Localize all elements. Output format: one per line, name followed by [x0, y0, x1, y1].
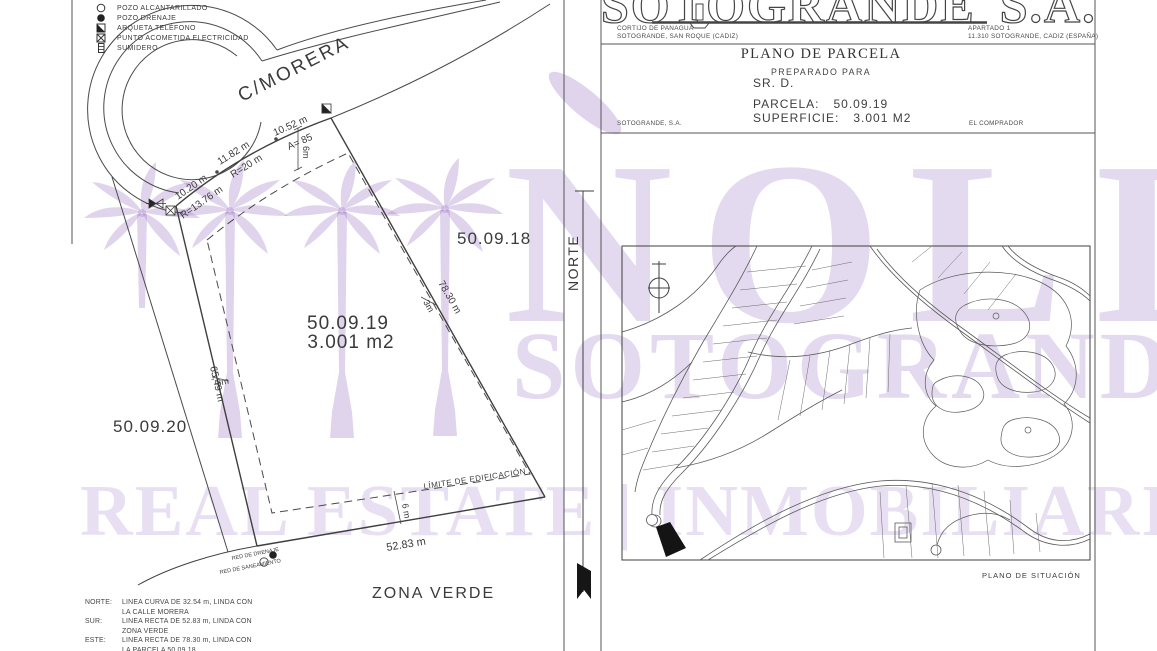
situation-map-caption: PLANO DE SITUACIÓN: [982, 571, 1081, 580]
parcel-field-label: PARCELA:: [753, 97, 819, 111]
street-morera-lines: [88, 0, 550, 552]
sewer-network-label: RED DE SANEAMIENTO: [219, 558, 282, 576]
legend-item: POZO DRENAJE: [96, 13, 249, 23]
note-text: LINEA RECTA DE 52.83 m, LINDA CONZONA VE…: [122, 617, 307, 636]
client-row: SR. D.: [753, 76, 794, 90]
area-row: SUPERFICIE:3.001 M2: [753, 111, 911, 125]
neighbor-east-label: 50.09.18: [457, 229, 531, 248]
legend-label: POZO ALCANTARILLADO: [117, 5, 208, 12]
map-culdesac: [647, 515, 658, 526]
area-field-label: SUPERFICIE:: [753, 111, 839, 125]
note-label: SUR:: [85, 617, 122, 636]
address-line: 11.310 SOTOGRANDE, CADIZ (ESPAÑA): [968, 33, 1098, 41]
legend-label: ARQUETA TELÉFONO: [117, 25, 196, 32]
address-line: SOTOGRANDE, SAN ROQUE (CADIZ): [617, 33, 738, 41]
document-page: NOLI SOTOGRANDE REAL ESTATE | INMOBILIAR…: [0, 0, 1157, 651]
legend-item: PUNTO ACOMETIDA ELECTRICIDAD: [96, 33, 249, 43]
square-x-icon: [96, 33, 107, 43]
address-line: APARTADO 1: [968, 25, 1098, 33]
parcel-row: PARCELA:50.09.19: [753, 97, 888, 111]
building-limit-label: LÍMITE DE EDIFICACIÓN: [423, 467, 527, 491]
address-right: APARTADO 1 11.310 SOTOGRANDE, CADIZ (ESP…: [968, 25, 1098, 41]
parcel-area-label: 3.001 m2: [307, 332, 394, 353]
document-subtitle: PREPARADO PARA: [601, 67, 1041, 77]
address-left: CORTIJO DE PANAGUA SOTOGRANDE, SAN ROQUE…: [617, 25, 738, 41]
parcel-field-value: 50.09.19: [833, 97, 888, 111]
legend-label: PUNTO ACOMETIDA ELECTRICIDAD: [117, 35, 249, 42]
grate-icon: [96, 43, 107, 53]
plot-plan-drawing: C/MORERA 10.52 m A= 85 11.82 m R=20 m 10…: [0, 0, 1157, 651]
title-block: PLANO DE PARCELA PREPARADO PARA: [601, 46, 1041, 77]
circle-filled-icon: [96, 13, 107, 23]
address-line: CORTIJO DE PANAGUA: [617, 25, 738, 33]
parcel-id-label: 50.09.19: [307, 313, 389, 334]
map-plot-lines: [622, 246, 1040, 558]
green-zone-label: ZONA VERDE: [372, 585, 495, 602]
signature-right: EL COMPRADOR: [969, 120, 1023, 127]
dim-road-setback: 6m: [301, 146, 311, 159]
map-roads: [622, 246, 1090, 560]
street-label: C/MORERA: [235, 32, 354, 106]
dim-south-setback: 6 m: [400, 503, 412, 520]
legend: POZO ALCANTARILLADO POZO DRENAJE ARQUETA…: [96, 3, 249, 53]
note-label: ESTE:: [85, 636, 122, 651]
signature-left: SOTOGRANDE, S.A.: [617, 120, 682, 127]
dim-south-length: 52.83 m: [386, 536, 427, 554]
compass-icon: [648, 261, 670, 313]
north-label: NORTE: [565, 235, 581, 291]
legend-item: ARQUETA TELÉFONO: [96, 23, 249, 33]
note-row: SUR: LINEA RECTA DE 52.83 m, LINDA CONZO…: [85, 617, 307, 636]
legend-label: SUMIDERO: [117, 45, 158, 52]
note-row: ESTE: LINEA RECTA DE 78.30 m, LINDA CONL…: [85, 636, 307, 651]
legend-item: SUMIDERO: [96, 43, 249, 53]
document-title: PLANO DE PARCELA: [601, 46, 1041, 63]
note-row: NORTE: LINEA CURVA DE 32.54 m, LINDA CON…: [85, 598, 307, 617]
note-label: NORTE:: [85, 598, 122, 617]
neighbor-west-label: 50.09.20: [113, 417, 187, 436]
area-field-value: 3.001 M2: [853, 111, 911, 125]
situation-map: [622, 246, 1090, 560]
note-text: LINEA CURVA DE 32.54 m, LINDA CONLA CALL…: [122, 598, 307, 617]
map-parcel-marker: [656, 522, 686, 557]
circle-outline-icon: [96, 3, 107, 13]
boundary-notes: NORTE: LINEA CURVA DE 32.54 m, LINDA CON…: [85, 598, 307, 651]
legend-label: POZO DRENAJE: [117, 15, 176, 22]
dim-west-setback: 3m: [215, 376, 229, 388]
square-half-filled-icon: [96, 23, 107, 33]
note-text: LINEA RECTA DE 78.30 m, LINDA CONLA PARC…: [122, 636, 307, 651]
plan-labels: C/MORERA 10.52 m A= 85 11.82 m R=20 m 10…: [113, 32, 1081, 602]
client-name: SR. D.: [753, 76, 794, 90]
legend-item: POZO ALCANTARILLADO: [96, 3, 249, 13]
map-golf-contours: [916, 272, 1076, 467]
